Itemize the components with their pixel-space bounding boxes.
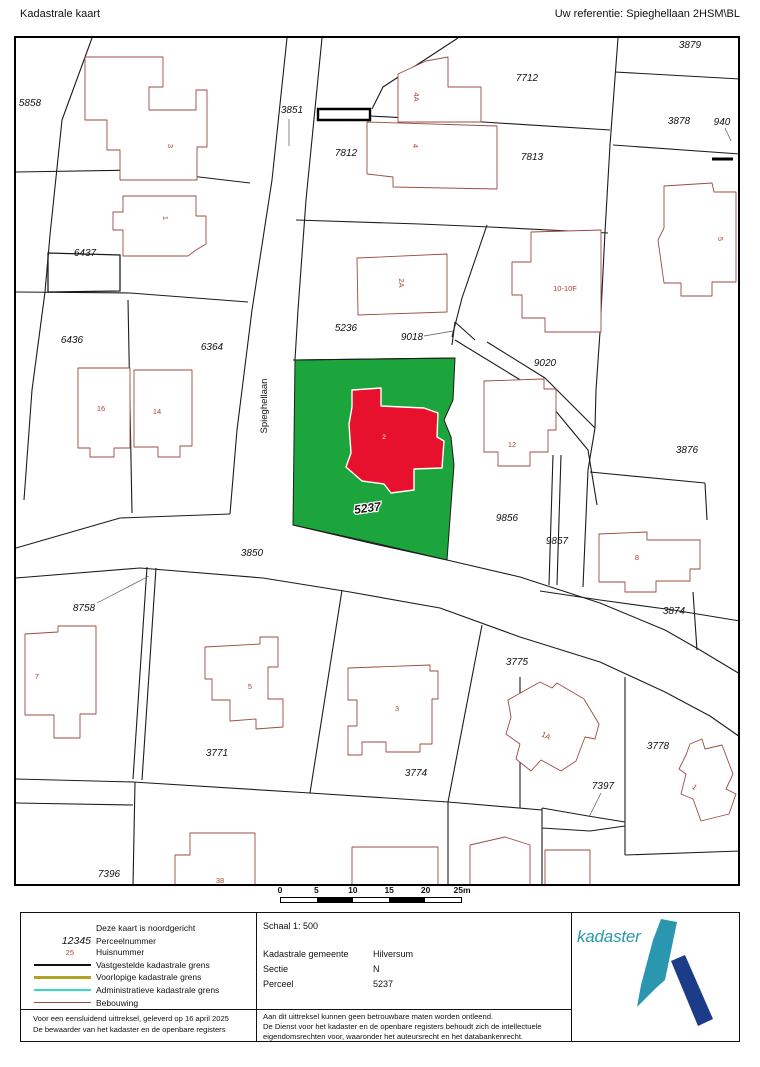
parcel-boundary-line [230, 38, 287, 514]
house-number-label: 5 [716, 237, 725, 241]
parcel-boundary-line [142, 568, 156, 780]
parcel-number-label: 7812 [335, 148, 358, 159]
legend-item-label: Huisnummer [96, 946, 144, 958]
parcel-boundary-line [542, 826, 625, 831]
label-leader-line [424, 331, 453, 336]
parcel-boundary-line [615, 72, 740, 79]
label-leader-line [97, 576, 149, 603]
parcel-number-label: 7396 [98, 869, 121, 880]
parcel-number-label: 3876 [676, 445, 699, 456]
bold-boundary-bar [318, 109, 370, 120]
north-note: Deze kaart is noordgericht [96, 922, 195, 934]
parcel-number-label: 3878 [668, 116, 691, 127]
label-leader-line [725, 128, 731, 141]
house-number-label: 8 [635, 553, 639, 562]
parcel-number-label: 3778 [647, 741, 670, 752]
legend-item-label: Administratieve kadastrale grens [96, 984, 219, 996]
scale-label: 25m [449, 885, 475, 895]
parcel-number-label: 3851 [281, 105, 303, 116]
street-name-label: Spieghellaan [259, 379, 270, 434]
parcel-number-label: 7712 [516, 73, 539, 84]
house-number-label: 2A [397, 278, 406, 287]
house-number-label: 7 [35, 672, 39, 681]
scale-label: 20 [413, 885, 439, 895]
scale-segment [281, 898, 317, 902]
building-outline [506, 682, 599, 771]
legend-item: Voorlopige kadastrale grens [21, 971, 256, 983]
building-outline [113, 196, 206, 256]
parcel-number-label: 3850 [241, 548, 264, 559]
parcel-boundary-line [590, 472, 705, 483]
legend-divider [571, 913, 572, 1041]
parcel-boundary-line [705, 483, 707, 520]
parcel-boundary-line [600, 38, 618, 332]
house-number-label: 4A [412, 92, 421, 101]
legend-panel: Deze kaart is noordgericht 12345Perceeln… [20, 912, 740, 1042]
parcel-boundary-line [133, 782, 135, 886]
scale-label: 5 [303, 885, 329, 895]
label-leader-line [589, 793, 601, 817]
scale-segment [353, 898, 389, 902]
parcel-number-label: 6436 [61, 335, 84, 346]
house-number-label: 3 [395, 704, 399, 713]
parcel-number-label: 5858 [19, 98, 42, 109]
building-outline [85, 57, 207, 180]
house-number-label: 1 [161, 216, 170, 220]
detail-label: Kadastrale gemeente [263, 949, 349, 959]
parcel-boundary-line [16, 779, 542, 810]
legend-item-label: Voorlopige kadastrale grens [96, 971, 201, 983]
line-olive-sample [34, 976, 91, 979]
parcel-boundary-line [448, 625, 482, 802]
parcel-boundary-line [133, 567, 147, 779]
legend-item-label: Vastgestelde kadastrale grens [96, 959, 210, 971]
building-outline [484, 379, 556, 466]
scale-text: Schaal 1: 500 [263, 921, 318, 931]
legend-item: Bebouwing [21, 997, 256, 1009]
legend-divider [21, 1009, 571, 1010]
house-number-label: 5 [248, 682, 252, 691]
scale-segment [425, 898, 461, 902]
parcel-boundary-line [16, 514, 230, 548]
parcel-boundary-line [452, 225, 487, 337]
building-outline [352, 847, 438, 885]
legend-line-sample [34, 997, 91, 1009]
parcel-boundary-line [595, 332, 600, 428]
legend-item: 25Huisnummer [21, 946, 256, 958]
building-outline [679, 739, 736, 821]
parcel-boundary-line [693, 592, 697, 650]
subject-house-number-label: 2 [382, 434, 386, 441]
detail-label: Sectie [263, 964, 288, 974]
footer-left-line: De bewaarder van het kadaster en de open… [33, 1025, 226, 1034]
building-outline [545, 850, 590, 885]
parcel-number-label: 940 [714, 117, 731, 128]
building-outline [599, 532, 700, 592]
house-number-label: 14 [153, 407, 161, 416]
parcel-boundary-line [557, 455, 561, 585]
parcel-number-label: 7813 [521, 152, 544, 163]
parcel-number-label: 7397 [592, 781, 615, 792]
kadaster-logo-icon [616, 915, 728, 1033]
parcel-number-label: 5236 [335, 323, 358, 334]
detail-value: N [373, 964, 380, 974]
footer-middle-line: Aan dit uittreksel kunnen geen betrouwba… [263, 1012, 493, 1021]
parcel-number-label: 8758 [73, 603, 96, 614]
building-outline [25, 626, 96, 738]
building-outline [205, 637, 283, 729]
house-number-label: 4 [411, 144, 420, 148]
legend-item: Administratieve kadastrale grens [21, 984, 256, 996]
parcel-number-label: 6437 [74, 248, 97, 259]
parcel-boundary-line [447, 560, 740, 674]
house-number-sample: 25 [34, 946, 91, 958]
scale-label: 15 [376, 885, 402, 895]
parcel-boundary-line [16, 292, 248, 302]
parcel-boundary-line [613, 145, 740, 154]
building-outline [348, 665, 438, 755]
parcel-number-label: 9020 [534, 358, 557, 369]
parcel-boundary-line [542, 808, 625, 822]
scale-segment [389, 898, 425, 902]
parcel-boundary-line [24, 292, 45, 500]
detail-value: Hilversum [373, 949, 413, 959]
parcel-number-label: 3874 [663, 606, 686, 617]
detail-value: 5237 [373, 979, 393, 989]
building-outline [470, 837, 530, 885]
line-black-sample [34, 964, 91, 966]
line-cyan-sample [34, 989, 91, 991]
scale-label: 0 [267, 885, 293, 895]
legend-item: Vastgestelde kadastrale grens [21, 959, 256, 971]
parcel-number-label: 6364 [201, 342, 224, 353]
parcel-number-label: 3879 [679, 40, 702, 51]
legend-item-label: Bebouwing [96, 997, 138, 1009]
footer-left-line: Voor een eensluidend uittreksel, gelever… [33, 1014, 229, 1023]
footer-middle-line: De Dienst voor het kadaster en de openba… [263, 1022, 542, 1031]
parcel-boundary-line [549, 455, 553, 585]
parcel-number-label: 3771 [206, 748, 228, 759]
cadastral-map: 5858385178127712781338793878940643764366… [0, 0, 760, 905]
footer-middle-line: eigendomsrechten voor, waaronder het aut… [263, 1032, 523, 1041]
scale-label: 10 [340, 885, 366, 895]
building-outline [512, 230, 601, 332]
legend-line-sample [34, 984, 91, 996]
parcel-boundary-line [295, 38, 322, 360]
building-outline [398, 57, 481, 122]
house-number-label: 38 [216, 876, 224, 885]
detail-label: Perceel [263, 979, 294, 989]
house-number-label: 3 [166, 144, 175, 148]
house-number-label: 10-10F [553, 284, 577, 293]
parcel-number-label: 3774 [405, 768, 428, 779]
scale-bar-graphic [280, 897, 462, 903]
line-red-sample [34, 1002, 91, 1003]
building-outline [367, 122, 497, 189]
scale-bar: 0510152025m [280, 885, 462, 905]
parcel-boundary-line [455, 322, 475, 340]
parcel-boundary-line [540, 591, 740, 621]
parcel-number-label: 3775 [506, 657, 529, 668]
parcel-boundary-line [583, 428, 595, 587]
legend-divider [256, 913, 257, 1041]
parcel-number-label: 9856 [496, 513, 519, 524]
building-outline [134, 370, 192, 457]
parcel-boundary-line [310, 590, 342, 793]
legend-line-sample [34, 959, 91, 971]
legend-line-sample [34, 971, 91, 983]
parcel-boundary-line [16, 803, 133, 805]
house-number-label: 12 [508, 440, 516, 449]
parcel-boundary-line [625, 851, 740, 855]
parcel-number-label: 9018 [401, 332, 424, 343]
kadaster-extract-page: { "header": { "title": "Kadastrale kaart… [0, 0, 760, 1067]
house-number-label: 16 [97, 404, 105, 413]
scale-segment [317, 898, 353, 902]
parcel-number-label: 9857 [546, 536, 569, 547]
